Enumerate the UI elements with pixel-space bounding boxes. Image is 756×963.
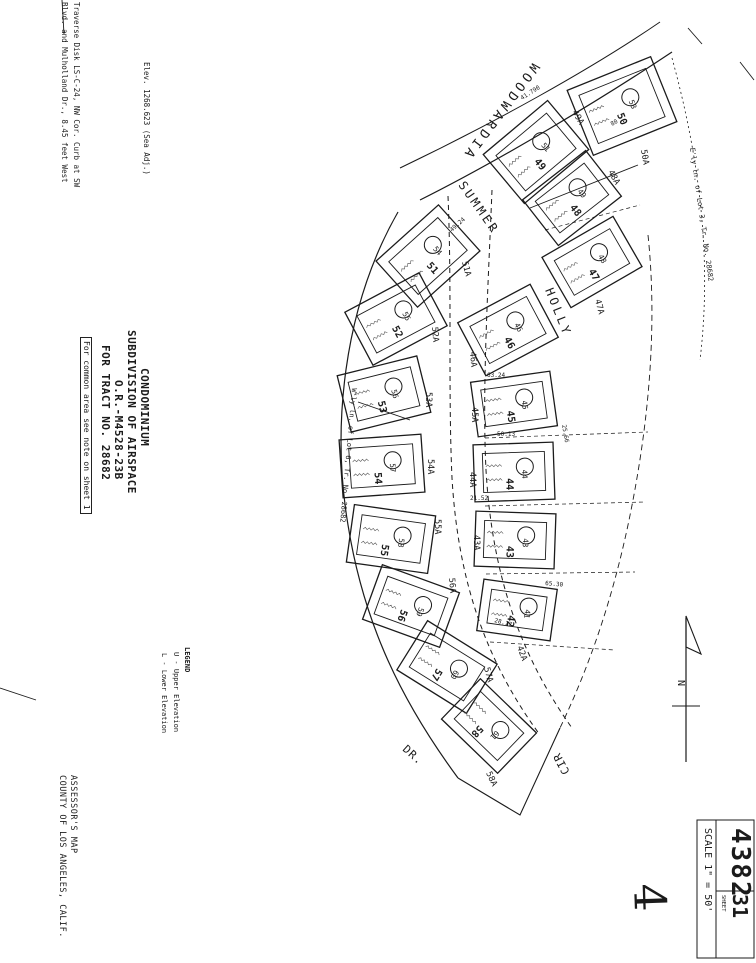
micro-text-squiggle [554,210,568,221]
lot-label-45A: 45A [469,407,479,422]
micro-text-squiggle [485,398,501,402]
lot-number-56: 56 [394,608,408,623]
map-title-line4: FOR TRACT NO. 28682 [100,345,111,480]
common-area-note: For common area see note on sheet 1 [80,337,92,514]
map-title-line2: SUBDIVISION OF AIRSPACE [126,330,137,494]
street-name-holly: HOLLY [542,286,574,339]
lot-label-51A: 51A [459,260,473,277]
micro-text-squiggle [361,541,377,545]
unit-number-61: 61 [488,729,501,742]
micro-text-squiggle [486,478,502,481]
street-name-dr: DR. [400,743,426,768]
airspace-outline-53 [348,367,420,421]
airspace-outline-46 [470,296,546,363]
micro-text-squiggle [418,657,433,667]
street-line-0 [341,212,458,778]
parcel-lot-57: 6057 [397,621,497,714]
micro-text-squiggle [372,331,387,340]
dimension-text-6: 25.66 [560,424,570,443]
east-boundary-note: E'ly ln. of Lot 3, Tr. No. 28682 [688,147,715,282]
micro-text-squiggle [363,527,379,531]
assessor-map-sheet: N451495350494848474646454544444343414254… [0,0,756,963]
unit-number-45: 45 [520,400,530,410]
legend-item-lower: L - Lower Elevation [160,653,167,733]
unit-number-53: 53 [627,99,639,111]
parcel-map-canvas: N451495350494848474646454544444343414254… [0,0,756,963]
micro-text-squiggle [353,473,369,476]
lot-label-53A: 53A [423,392,433,407]
unit-number-51: 51 [539,141,552,154]
lot-number-49: 49 [531,157,547,173]
lot-label-56A: 56A [446,577,457,593]
unit-number-58: 58 [396,538,406,549]
unit-number-55: 55 [400,310,412,322]
lot-label-55A: 55A [432,519,442,534]
micro-text-squiggle [487,545,503,548]
street-name-woodwardia: WOODWARDIA [459,60,542,163]
airspace-outline-50 [579,68,665,143]
stray-mark-3 [0,688,36,700]
parcel-lot-43: 4343 [474,511,556,569]
lot-number-43: 43 [503,546,514,558]
handwritten-mark: 4 [623,883,675,913]
lot-number-45: 45 [504,410,517,423]
footer-assessors-map: ASSESSOR'S MAP [69,775,78,854]
micro-text-squiggle [357,403,373,409]
airspace-outline-55 [357,515,426,564]
parcel-outline-55 [346,505,435,574]
footer-county: COUNTY OF LOS ANGELES, CALIF. [58,775,67,938]
stray-mark-2 [740,62,754,80]
lot-label-42A: 42A [514,645,529,663]
unit-number-44: 44 [520,469,529,479]
dimension-text-4: 21.52 [470,495,488,502]
north-arrow-head [686,616,701,654]
micro-text-squiggle [563,262,578,272]
micro-text-squiggle [366,319,381,328]
parcel-lot-52: 5552 [345,273,447,365]
unit-number-56: 56 [389,388,400,399]
unit-number-54: 54 [431,244,444,257]
unit-number-60: 60 [448,668,461,681]
micro-text-squiggle [486,464,502,467]
micro-text-squiggle [594,118,610,126]
lot-number-52: 52 [389,324,404,340]
map-book-number: 4382 [727,828,753,899]
lot-number-51: 51 [424,260,440,276]
micro-text-squiggle [491,612,507,616]
lot-label-46A: 46A [467,351,478,367]
legend-title: LEGEND [183,647,190,672]
lot-label-50A: 50A [638,149,651,166]
micro-text-squiggle [588,105,604,113]
street-line-3 [420,52,672,200]
lot-division-line-2 [486,572,635,574]
parcel-lot-58: 6158 [441,679,536,773]
unit-number-57: 57 [388,463,398,473]
scale-label: SCALE 1" = 50' [702,828,712,912]
dimension-text-3: 50.13 [497,431,515,438]
map-title-line1: CONDOMINIUM [139,368,150,446]
unit-number-59: 59 [414,606,426,618]
parcel-lot-42: 4142 [477,579,558,641]
lot-number-44: 44 [503,478,514,490]
lot-division-line-4 [545,205,640,230]
lot-number-55: 55 [378,543,391,556]
street-name-summer: SUMMER [456,179,503,237]
lot-label-47A: 47A [592,298,606,315]
dimension-text-8: 65.30 [545,580,564,589]
micro-text-squiggle [493,599,509,603]
parcel-outline-58 [441,679,536,773]
sheet-number: 31 [730,894,750,918]
airspace-outline-47 [554,229,629,296]
micro-text-squiggle [508,155,522,167]
sheet-label: SHEET [720,895,726,912]
parcel-lot-50: 5350 [567,57,677,156]
micro-text-squiggle [400,259,413,271]
parcel-lot-55: 5855 [346,505,435,574]
parcel-outline-57 [397,621,497,714]
parcel-outline-52 [345,273,447,365]
lot-number-58: 58 [469,723,485,739]
dimension-text-2: 63.24 [487,372,505,379]
stray-mark-1 [688,28,702,44]
micro-text-squiggle [570,274,585,284]
micro-text-squiggle [386,589,402,596]
micro-text-squiggle [353,459,369,462]
unit-number-41: 41 [522,609,532,619]
lot-number-54: 54 [371,472,383,485]
lot-division-line-3 [490,642,615,650]
legend-item-upper: U - Upper Elevation [172,652,179,732]
traverse-note-line1: Traverse Disk LS-C-24, NW Cor. Curb at S… [73,2,81,187]
traverse-note-line2: Blvd. and Mulholland Dr., 8.45 feet West [61,2,69,183]
elevation-note: Elev. 1268.623 (Sea Adj.) [143,62,151,175]
lot-label-44A: 44A [467,472,477,487]
parcel-outline-43 [474,511,556,569]
street-line-5 [560,235,652,728]
airspace-outline-58 [454,691,524,760]
parcel-lot-45: 4545 [471,371,558,437]
micro-text-squiggle [517,166,531,178]
micro-text-squiggle [485,341,500,350]
airspace-outline-52 [357,285,435,353]
stray-mark-5 [530,165,638,208]
micro-text-squiggle [474,701,487,714]
lot-label-54A: 54A [425,459,435,474]
micro-text-squiggle [381,602,397,609]
north-label: N [675,680,686,686]
airspace-outline-57 [409,633,484,701]
unit-number-43: 43 [521,538,530,547]
street-line-7 [458,728,560,815]
micro-text-squiggle [487,412,503,416]
lot-label-49A: 49A [569,109,585,127]
lot-division-line-1 [485,502,645,506]
street-name-cir: CIR [550,750,572,776]
lot-label-43A: 43A [471,535,481,550]
lot-label-52A: 52A [429,326,440,342]
lot-number-46: 46 [501,335,516,351]
map-title-line3: O.R.-M4528-23B [113,380,124,480]
micro-text-squiggle [487,531,503,534]
lot-label-48A: 48A [605,169,621,187]
parcel-outline-45 [471,371,558,437]
